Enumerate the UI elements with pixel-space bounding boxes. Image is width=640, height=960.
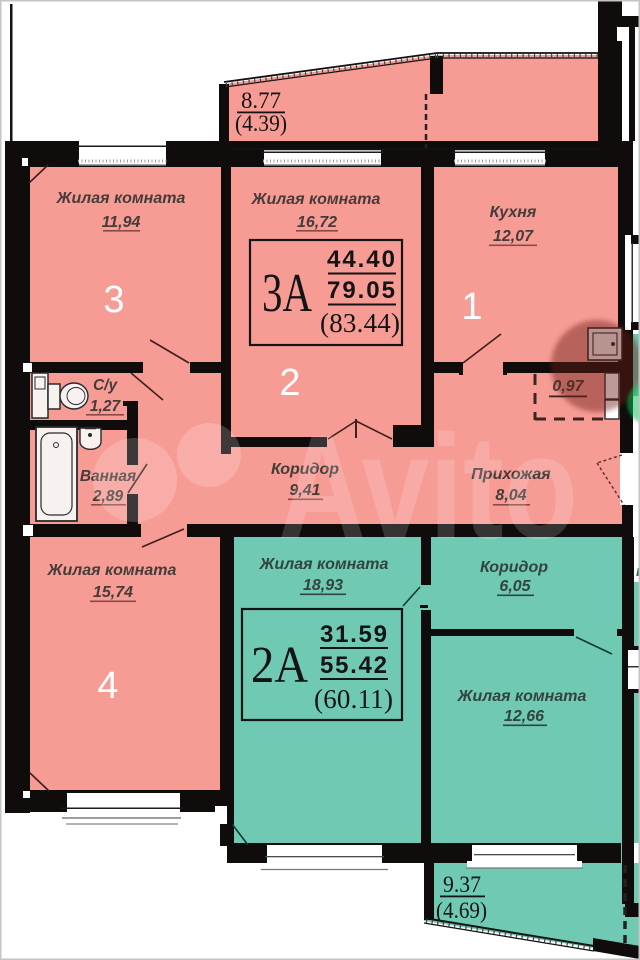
svg-text:79.05: 79.05 (327, 277, 395, 304)
svg-text:55.42: 55.42 (320, 652, 387, 679)
svg-text:(4.39): (4.39) (235, 111, 287, 136)
svg-text:С/у: С/у (93, 377, 119, 394)
svg-text:Жилая комната: Жилая комната (251, 191, 381, 208)
svg-text:44.40: 44.40 (327, 246, 395, 273)
svg-text:Кухня: Кухня (490, 204, 537, 221)
svg-text:3: 3 (103, 279, 124, 321)
svg-text:Avito: Avito (278, 405, 578, 570)
svg-text:2А: 2А (251, 637, 308, 694)
svg-text:31.59: 31.59 (320, 621, 387, 648)
svg-text:1: 1 (461, 286, 482, 328)
svg-text:Жилая комната: Жилая комната (56, 190, 186, 207)
svg-text:8.77: 8.77 (241, 88, 281, 113)
svg-text:(83.44): (83.44) (320, 308, 400, 338)
svg-text:(60.11): (60.11) (314, 684, 393, 714)
svg-text:11,94: 11,94 (102, 214, 141, 231)
svg-text:2: 2 (279, 362, 300, 404)
svg-text:3А: 3А (262, 262, 312, 323)
svg-text:16,72: 16,72 (297, 214, 337, 231)
svg-text:4: 4 (97, 665, 118, 707)
svg-text:6,05: 6,05 (499, 578, 531, 595)
svg-text:Жилая комната: Жилая комната (457, 688, 587, 705)
svg-text:Жилая комната: Жилая комната (47, 562, 177, 579)
svg-text:1,27: 1,27 (90, 398, 122, 415)
svg-text:12,07: 12,07 (493, 228, 534, 245)
svg-text:15,74: 15,74 (93, 584, 133, 601)
svg-text:18,93: 18,93 (303, 577, 343, 594)
svg-text:12,66: 12,66 (504, 708, 544, 725)
svg-text:(4.69): (4.69) (436, 898, 487, 923)
svg-text:9.37: 9.37 (443, 872, 481, 897)
